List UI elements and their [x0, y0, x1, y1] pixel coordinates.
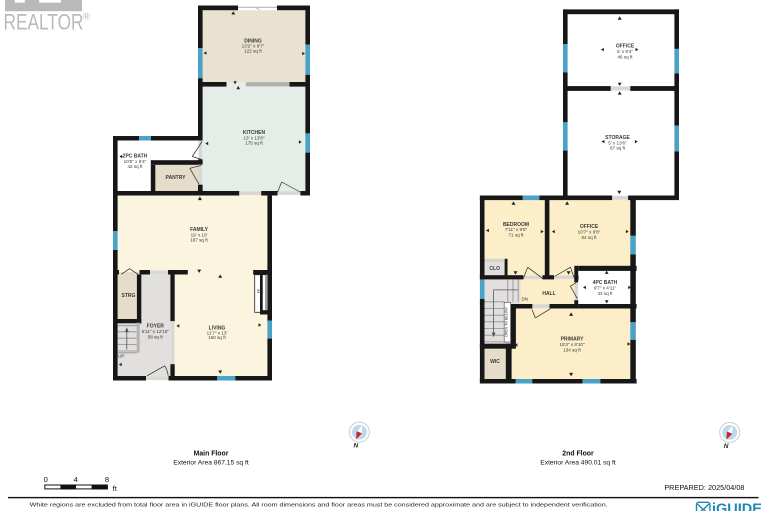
svg-text:10'5" x 6'4": 10'5" x 6'4" [124, 159, 147, 164]
svg-text:42 sq ft: 42 sq ft [127, 164, 143, 169]
svg-text:67 sq ft: 67 sq ft [610, 146, 626, 151]
svg-text:UP: UP [118, 354, 124, 359]
svg-text:0: 0 [44, 475, 48, 484]
svg-text:4: 4 [74, 475, 78, 484]
svg-text:Exterior Area 867.15 sq ft: Exterior Area 867.15 sq ft [173, 460, 249, 467]
svg-text:White regions are excluded fro: White regions are excluded from total fl… [30, 503, 609, 509]
svg-text:Main Floor: Main Floor [194, 451, 229, 458]
svg-text:CLO: CLO [489, 266, 500, 272]
svg-text:58 sq ft: 58 sq ft [148, 334, 164, 339]
svg-text:DN: DN [521, 296, 528, 301]
svg-text:N: N [353, 443, 358, 450]
svg-text:REALTOR: REALTOR [4, 10, 84, 35]
svg-text:PANTRY: PANTRY [166, 175, 187, 181]
svg-text:2nd Floor: 2nd Floor [562, 451, 594, 458]
svg-text:STRG: STRG [122, 293, 136, 299]
svg-text:134 sq ft: 134 sq ft [563, 347, 581, 352]
svg-text:175 sq ft: 175 sq ft [245, 141, 263, 146]
svg-text:iGUIDE: iGUIDE [712, 502, 762, 511]
svg-text:6'11" x 12'10": 6'11" x 12'10" [142, 329, 170, 334]
svg-text:8: 8 [105, 475, 109, 484]
svg-text:FP: FP [257, 288, 261, 293]
svg-text:ft: ft [113, 484, 118, 493]
svg-text:94 sq ft: 94 sq ft [581, 235, 597, 240]
svg-text:®: ® [83, 12, 90, 23]
svg-text:PREPARED: 2025/04/08: PREPARED: 2025/04/08 [664, 483, 744, 492]
svg-text:122 sq ft: 122 sq ft [244, 49, 262, 54]
svg-text:N: N [724, 443, 729, 450]
svg-text:Exterior Area 490.01 sq ft: Exterior Area 490.01 sq ft [540, 460, 616, 467]
svg-text:OPEN TO BELOW: OPEN TO BELOW [505, 306, 509, 336]
svg-text:150 sq ft: 150 sq ft [208, 335, 226, 340]
svg-text:33 sq ft: 33 sq ft [597, 291, 613, 296]
svg-text:46 sq ft: 46 sq ft [617, 54, 633, 59]
svg-text:187 sq ft: 187 sq ft [190, 238, 208, 243]
svg-text:WIC: WIC [490, 359, 500, 365]
svg-text:71 sq ft: 71 sq ft [508, 232, 524, 237]
svg-text:HALL: HALL [542, 291, 555, 297]
